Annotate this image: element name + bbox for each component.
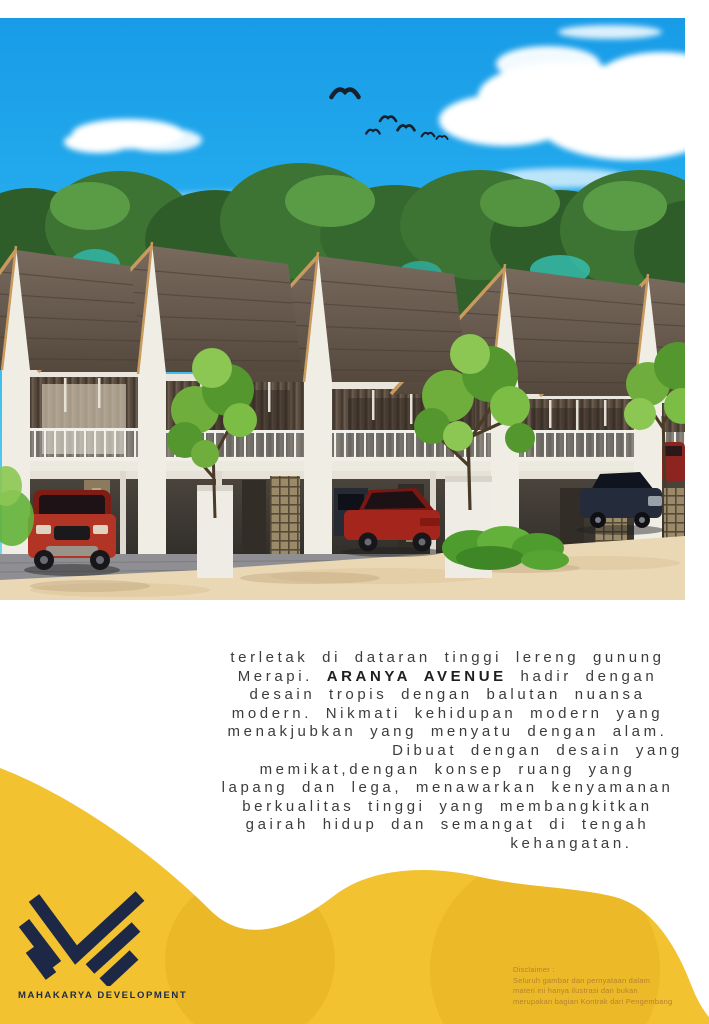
intro-line-2-post: hadir dengan xyxy=(521,668,658,685)
intro-line-3: desain tropis dengan balutan nuansa xyxy=(185,686,709,705)
intro-line-2-pre: Merapi. xyxy=(238,668,313,685)
brand-name: ARANYA AVENUE xyxy=(327,668,507,685)
house-facades xyxy=(26,370,685,571)
disclaimer-line-3: materi ini hanya ilustrasi dan bukan xyxy=(513,986,683,997)
intro-line-2: Merapi. ARANYA AVENUE hadir dengan xyxy=(185,668,709,687)
disclaimer-line-1: Disclaimer : xyxy=(513,965,683,976)
logo-wordmark: MAHAKARYA DEVELOPMENT xyxy=(18,990,218,1001)
intro-line-4: modern. Nikmati kehidupan modern yang xyxy=(185,705,709,724)
disclaimer: Disclaimer : Seluruh gambar dan pernyata… xyxy=(513,965,683,1007)
intro-line-1: terletak di dataran tinggi lereng gunung xyxy=(185,649,709,668)
hero-house-render xyxy=(0,18,685,600)
disclaimer-line-2: Seluruh gambar dan pernyataan dalam xyxy=(513,976,683,987)
brochure-page: { "intro": { "line1": "terletak di datar… xyxy=(0,0,709,1024)
hero-scene xyxy=(0,18,685,600)
disclaimer-line-4: merupakan bagian Kontrak dari Pengembang xyxy=(513,997,683,1008)
intro-line-5: menakjubkan yang menyatu dengan alam. xyxy=(185,723,709,742)
mahakarya-logo-icon xyxy=(14,888,154,986)
